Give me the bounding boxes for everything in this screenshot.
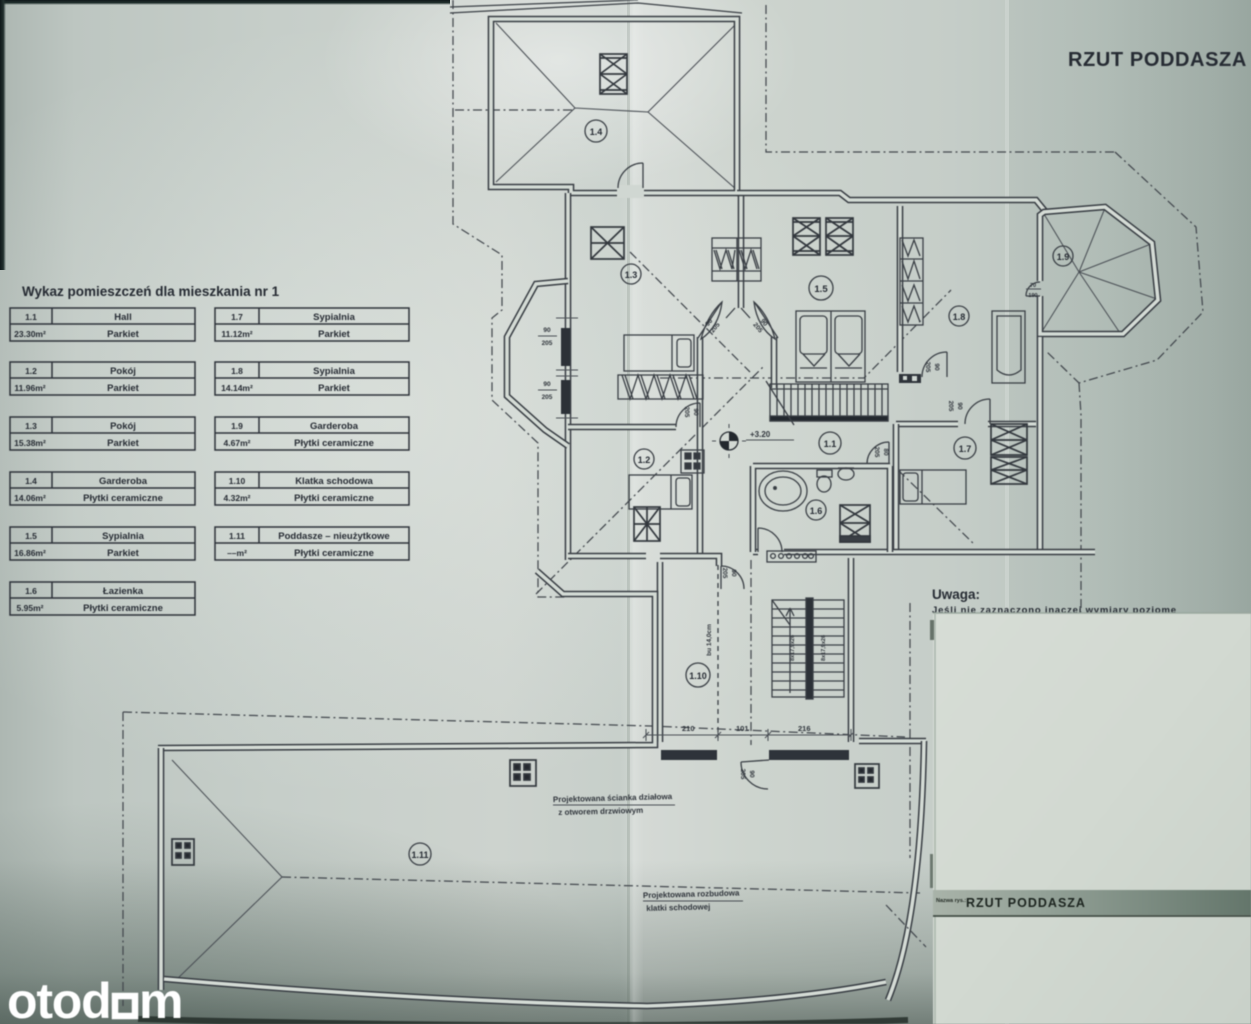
svg-text:Garderoba: Garderoba [310,421,359,432]
svg-text:4.32m²: 4.32m² [224,493,251,503]
svg-text:11.12m²: 11.12m² [221,329,252,339]
svg-text:14.06m²: 14.06m² [14,493,46,503]
svg-text:Płytki ceramiczne: Płytki ceramiczne [294,548,374,559]
svg-text:1.4: 1.4 [590,127,603,137]
svg-text:z otworem drzwiowym: z otworem drzwiowym [558,806,643,817]
svg-text:205: 205 [873,447,880,458]
svg-text:1.7: 1.7 [231,312,243,322]
svg-text:4.67m²: 4.67m² [224,438,251,448]
svg-text:Projektowana ścianka działowa: Projektowana ścianka działowa [553,792,673,804]
svg-text:Pokój: Pokój [110,421,136,432]
svg-text:90: 90 [543,327,551,334]
svg-text:Klatka schodowa: Klatka schodowa [295,476,373,487]
svg-text:216: 216 [798,724,811,733]
svg-text:8x17,9x26: 8x17,9x26 [790,635,796,661]
svg-text:205: 205 [924,362,931,373]
svg-text:210: 210 [682,724,695,733]
svg-text:90: 90 [748,770,755,778]
svg-text:1.1: 1.1 [25,312,37,322]
svg-text:1.10: 1.10 [689,671,707,681]
svg-text:205: 205 [721,568,728,579]
svg-text:1.3: 1.3 [625,270,638,280]
svg-text:bu 14,0cm: bu 14,0cm [706,624,713,656]
svg-text:16.86m²: 16.86m² [14,548,46,558]
svg-text:90: 90 [933,363,940,371]
svg-text:Uwaga:: Uwaga: [932,587,980,602]
svg-text:205: 205 [683,407,690,418]
svg-text:Łazienka: Łazienka [103,586,144,597]
svg-text:205: 205 [739,769,746,780]
svg-text:1.9: 1.9 [231,421,243,431]
svg-text:1.2: 1.2 [638,455,651,465]
svg-text:Sypialnia: Sypialnia [102,531,144,542]
svg-text:90: 90 [956,402,963,410]
svg-text:Parkiet: Parkiet [107,383,140,394]
svg-text:5.95m²: 5.95m² [17,603,44,613]
svg-text:1.2: 1.2 [25,366,37,376]
svg-text:RZUT PODDASZA: RZUT PODDASZA [966,896,1086,910]
svg-text:90: 90 [692,408,699,416]
svg-text:Parkiet: Parkiet [318,383,351,394]
svg-text:1.5: 1.5 [25,531,37,541]
svg-text:1.7: 1.7 [959,444,972,454]
svg-text:Sypialnia: Sypialnia [313,366,355,377]
svg-text:90: 90 [543,381,551,388]
svg-text:Parkiet: Parkiet [107,329,140,340]
svg-text:+3.20: +3.20 [750,430,771,439]
svg-text:Projektowana rozbudowa: Projektowana rozbudowa [643,889,740,901]
svg-text:klatki schodowej: klatki schodowej [646,902,710,913]
svg-text:1.3: 1.3 [25,421,37,431]
svg-text:23.30m²: 23.30m² [14,329,46,339]
svg-text:1.5: 1.5 [814,284,828,295]
svg-text:70: 70 [1030,283,1036,289]
svg-text:1.6: 1.6 [810,506,823,516]
svg-text:1.8: 1.8 [953,312,966,322]
svg-text:1.4: 1.4 [25,476,37,486]
svg-text:14.14m²: 14.14m² [221,383,253,393]
svg-text:80: 80 [882,448,889,456]
svg-text:8x17,9x26: 8x17,9x26 [821,635,827,661]
svg-text:Hall: Hall [114,312,131,323]
svg-text:Sypialnia: Sypialnia [313,312,355,323]
svg-text:1.10: 1.10 [229,476,246,486]
svg-text:Wykaz pomieszczeń dla mieszkan: Wykaz pomieszczeń dla mieszkania nr 1 [22,284,280,299]
svg-text:Płytki ceramiczne: Płytki ceramiczne [294,493,374,504]
svg-text:1.1: 1.1 [824,439,837,449]
svg-text:1.11: 1.11 [229,531,245,541]
svg-text:11.96m²: 11.96m² [14,383,45,393]
svg-text:RZUT PODDASZA: RZUT PODDASZA [1068,49,1247,71]
svg-text:Płytki ceramiczne: Płytki ceramiczne [83,493,163,504]
svg-text:1.8: 1.8 [231,366,243,376]
svg-text:Płytki ceramiczne: Płytki ceramiczne [294,438,374,449]
svg-text:205: 205 [947,401,954,412]
svg-text:m: m [139,973,182,1024]
svg-text:205: 205 [542,394,553,401]
svg-text:Pokój: Pokój [110,366,136,377]
svg-text:1.9: 1.9 [1057,252,1070,262]
svg-text:Płytki ceramiczne: Płytki ceramiczne [83,603,163,614]
svg-text:Nazwa rys.:: Nazwa rys.: [936,898,966,904]
svg-text:Poddasze – nieużytkowe: Poddasze – nieużytkowe [278,531,389,542]
svg-text:Garderoba: Garderoba [99,476,148,487]
svg-text:otod: otod [7,973,110,1024]
svg-text:101: 101 [736,724,749,733]
svg-text:Parkiet: Parkiet [107,438,140,449]
svg-text:1.6: 1.6 [25,586,37,596]
svg-text:15.38m²: 15.38m² [14,438,46,448]
svg-text:Parkiet: Parkiet [318,329,351,340]
svg-text:205: 205 [542,340,553,347]
svg-text:1.11: 1.11 [411,850,428,860]
svg-text:––m²: ––m² [227,548,247,558]
svg-text:190: 190 [1028,293,1037,299]
svg-text:Parkiet: Parkiet [107,548,140,559]
svg-text:90: 90 [730,569,737,577]
